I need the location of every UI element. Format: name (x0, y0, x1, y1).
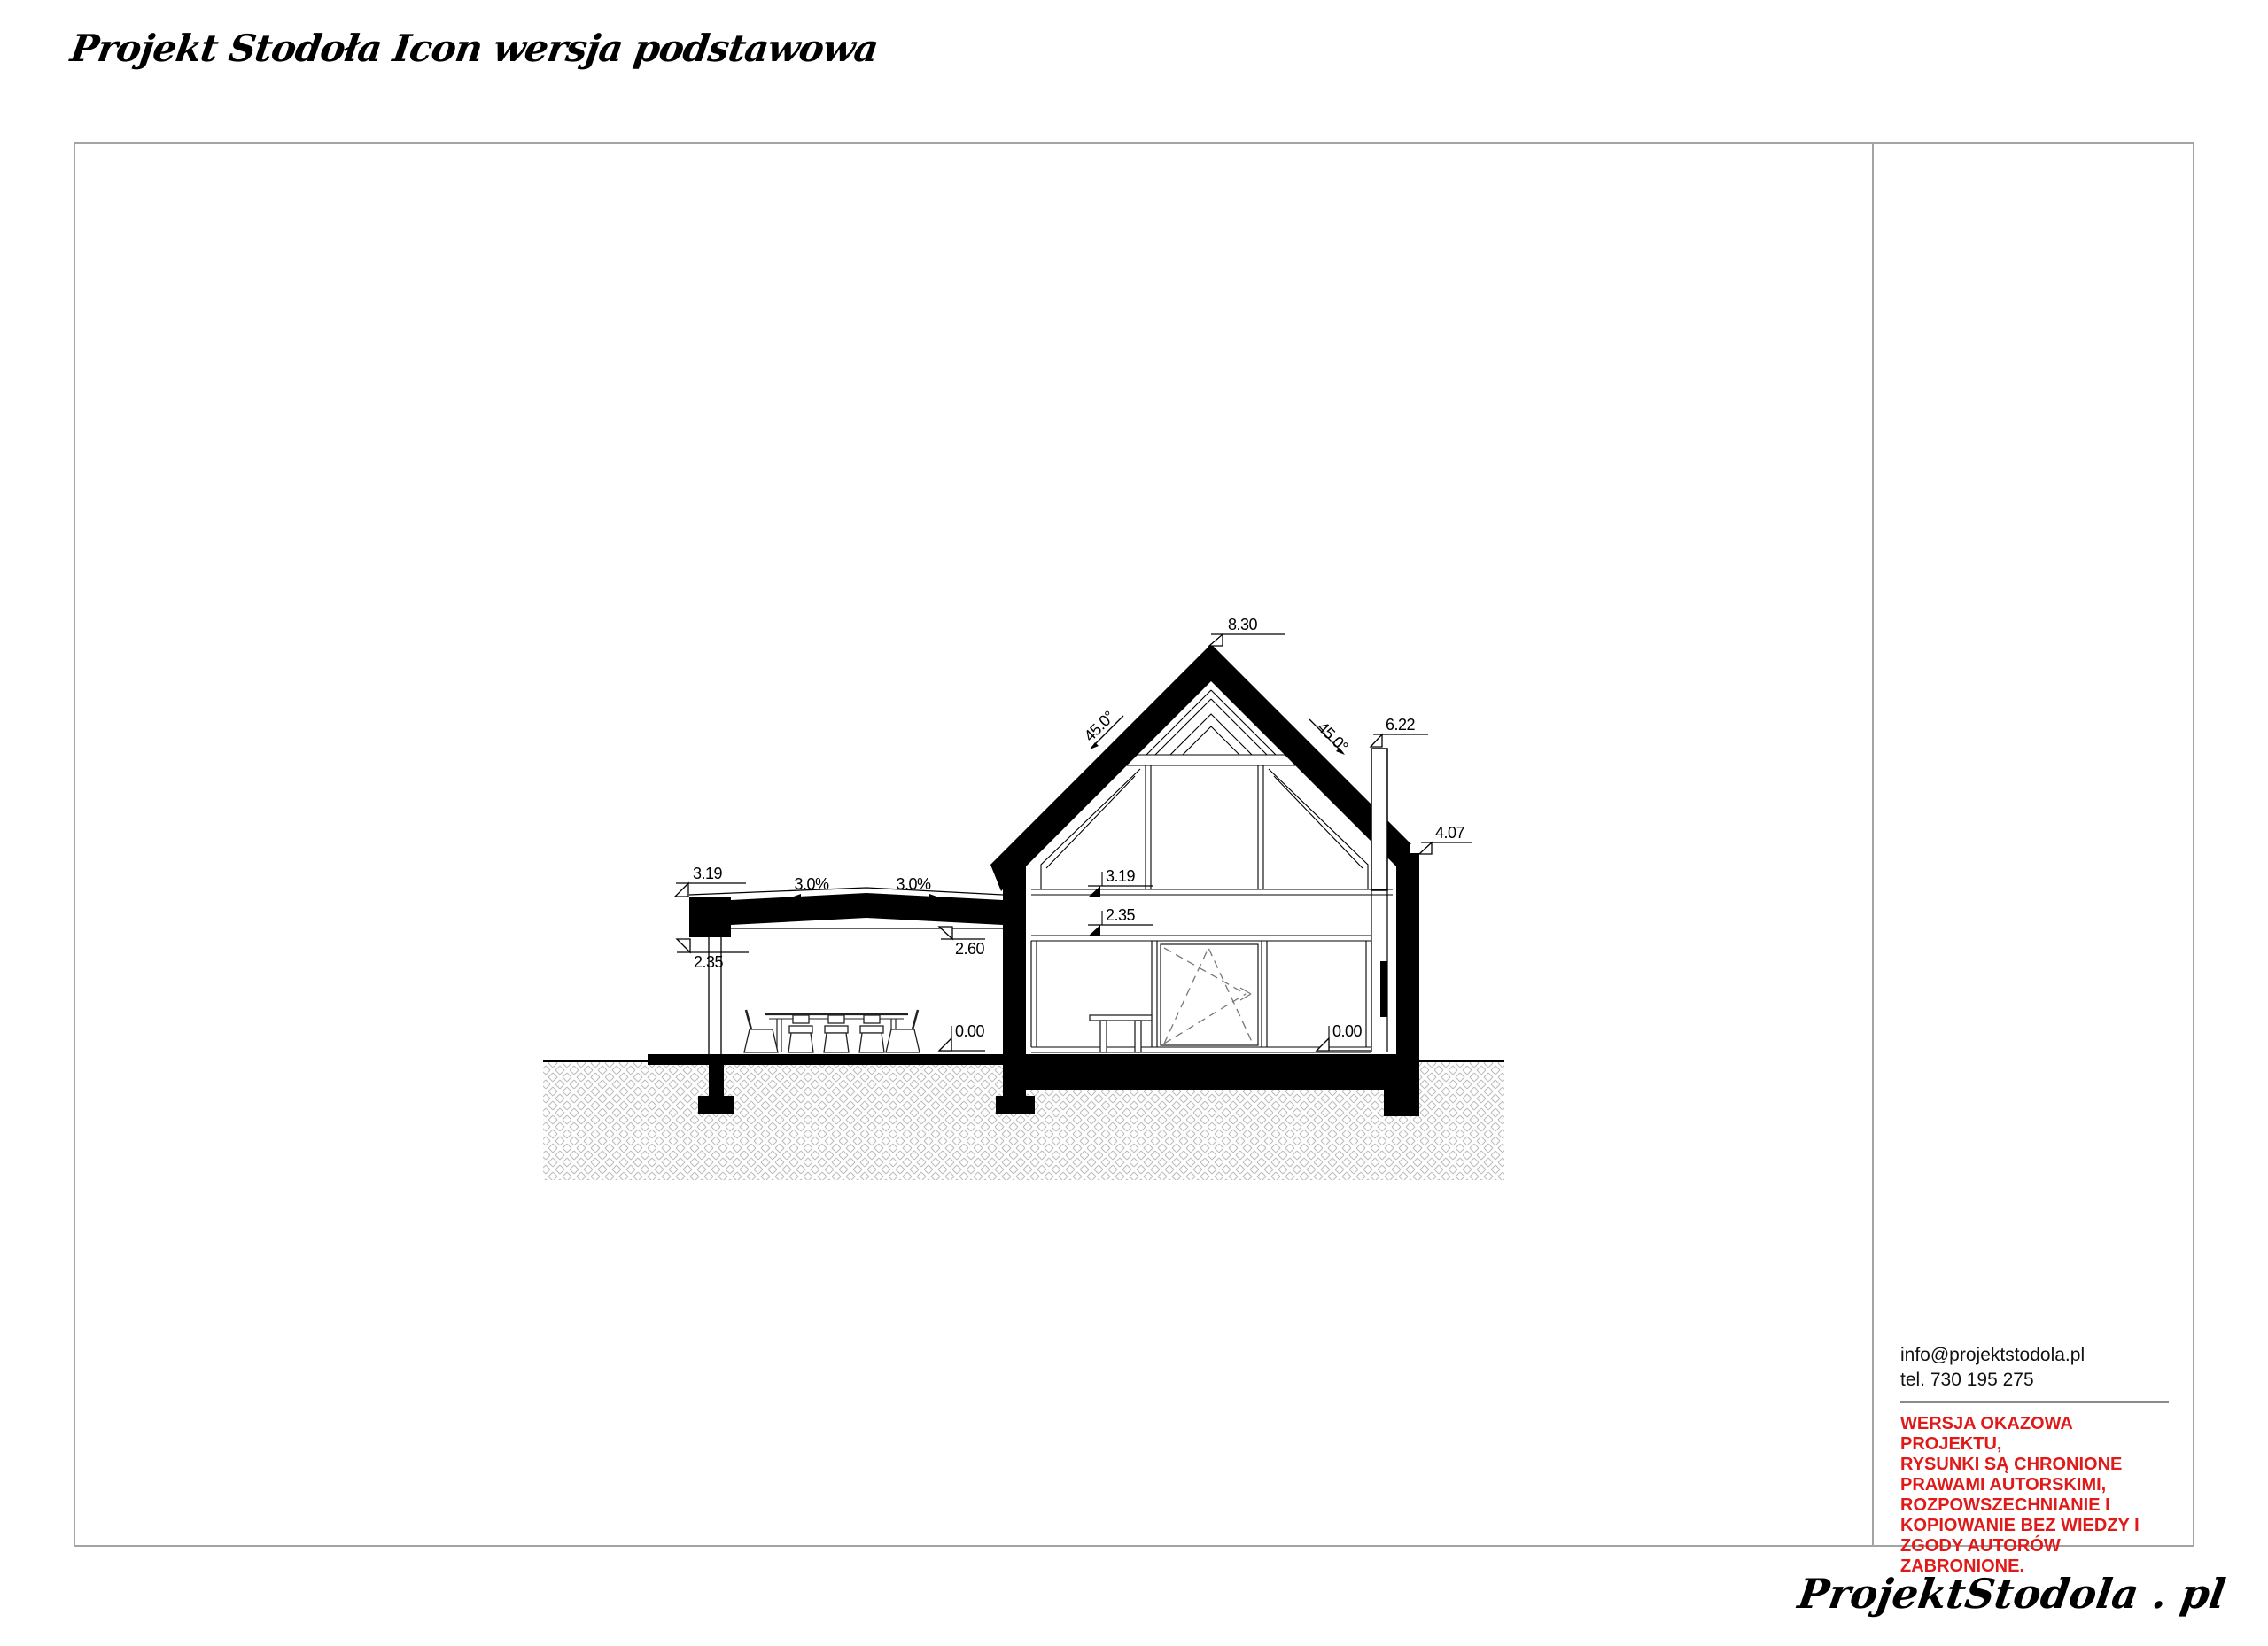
flue (1380, 961, 1387, 1017)
svg-text:3.19: 3.19 (693, 865, 723, 882)
svg-text:45.0°: 45.0° (1314, 718, 1351, 756)
terrace-stool (824, 1015, 849, 1052)
level-glazing-top: 2.35 (1088, 906, 1153, 936)
sheet: Projekt Stodoła Icon wersja podstawowa (0, 0, 2268, 1646)
warning-line: ROZPOWSZECHNIANIE I (1900, 1495, 2177, 1516)
level-canopy-ceiling: 2.60 (939, 927, 985, 958)
terrace-stool (859, 1015, 884, 1052)
canopy-fall-left: 3.0% (791, 875, 840, 901)
svg-text:8.30: 8.30 (1228, 616, 1258, 633)
level-ground-floor: 0.00 (1317, 1022, 1371, 1051)
warning-line: RYSUNKI SĄ CHRONIONE (1900, 1455, 2177, 1475)
tilt-turn-door-symbol (1164, 948, 1253, 1044)
svg-text:3.0%: 3.0% (896, 875, 931, 893)
contact-email: info@projektstodola.pl (1900, 1343, 2177, 1368)
svg-text:2.35: 2.35 (1106, 906, 1136, 924)
level-ridge: 8.30 (1209, 616, 1285, 646)
warning-line: PRAWAMI AUTORSKIMI, (1900, 1475, 2177, 1495)
svg-text:0.00: 0.00 (955, 1022, 985, 1040)
brand-logo: ProjektStodola . pl (1795, 1570, 2211, 1618)
terrace-chairs (744, 1010, 920, 1052)
svg-text:3.19: 3.19 (1106, 867, 1136, 885)
canopy-fall-right: 3.0% (890, 875, 939, 901)
svg-text:3.0%: 3.0% (794, 875, 829, 893)
eaves-notch (1410, 844, 1420, 853)
level-canopy-top: 3.19 (675, 865, 746, 897)
svg-text:6.22: 6.22 (1386, 716, 1416, 734)
svg-text:2.35: 2.35 (694, 953, 724, 971)
title-block-divider (1900, 1401, 2169, 1403)
chimney (1371, 749, 1387, 1052)
level-upper-floor: 3.19 (1088, 867, 1153, 897)
level-canopy-edge-bottom: 2.35 (677, 939, 749, 971)
terrace-stool (788, 1015, 813, 1052)
title-block: info@projektstodola.pl tel. 730 195 275 … (1900, 1343, 2177, 1577)
copyright-warning: WERSJA OKAZOWA PROJEKTU, RYSUNKI SĄ CHRO… (1900, 1414, 2177, 1577)
warning-line: WERSJA OKAZOWA PROJEKTU, (1900, 1414, 2177, 1455)
svg-text:0.00: 0.00 (1332, 1022, 1363, 1040)
svg-text:4.07: 4.07 (1435, 824, 1465, 842)
ground-floor-glazing (1031, 936, 1371, 1052)
level-terrace-floor: 0.00 (939, 1022, 985, 1051)
svg-text:2.60: 2.60 (955, 940, 985, 958)
level-eaves: 4.07 (1419, 824, 1472, 854)
warning-line: KOPIOWANIE BEZ WIEDZY I (1900, 1516, 2177, 1536)
contact-phone: tel. 730 195 275 (1900, 1368, 2177, 1393)
roof (990, 644, 1420, 891)
level-chimney-top: 6.22 (1371, 716, 1428, 747)
